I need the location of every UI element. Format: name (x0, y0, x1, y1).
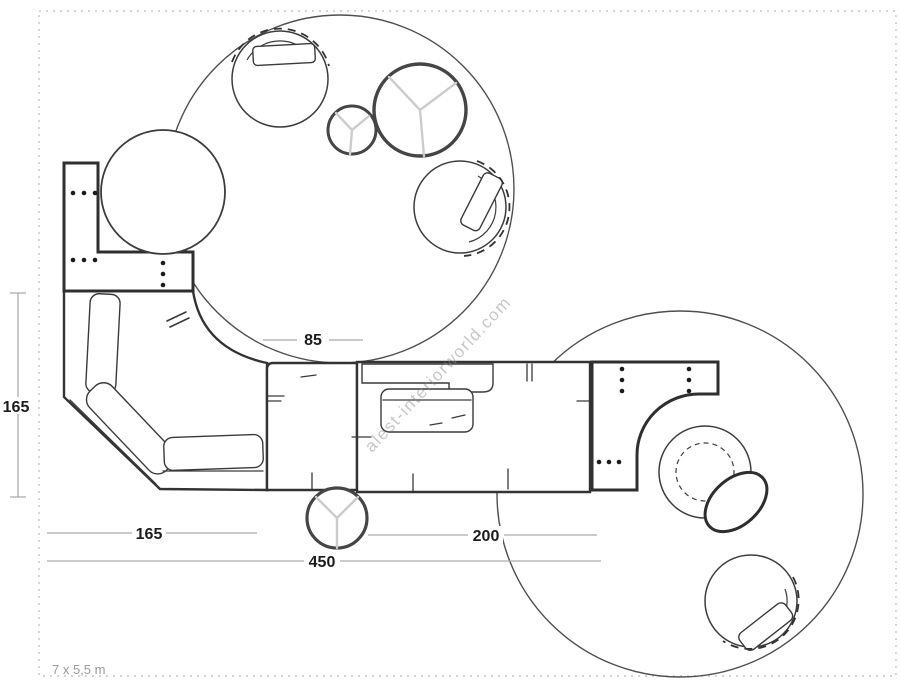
armchair-top (232, 29, 329, 127)
dimension-85-label: 85 (304, 332, 322, 349)
side-table-large (374, 64, 466, 156)
seat-cushion-left (163, 434, 263, 470)
swivel-chair-with-ottoman (659, 426, 778, 543)
dimension-450-label: 450 (309, 554, 336, 571)
floor-plan-svg: alest-interiorworld.com 165 85 165 200 4… (0, 0, 900, 695)
floor-plan-page: alest-interiorworld.com 165 85 165 200 4… (0, 0, 900, 695)
side-table-small (328, 106, 376, 154)
back-cushion-vertical (85, 293, 120, 393)
room-size-label: 7 x 5,5 m (52, 662, 105, 677)
armchair-bottom-right (705, 555, 799, 653)
dimension-200-label: 200 (473, 528, 500, 545)
dim-line-left-165 (10, 293, 26, 497)
sofa-module-small (267, 363, 357, 490)
ottoman-pouf (101, 130, 225, 254)
dimension-165-label: 165 (136, 526, 163, 543)
dimension-left-165-label: 165 (3, 399, 30, 416)
armchair-cushion (253, 43, 316, 65)
armchair-right (414, 161, 509, 256)
side-table-bottom (307, 488, 367, 548)
